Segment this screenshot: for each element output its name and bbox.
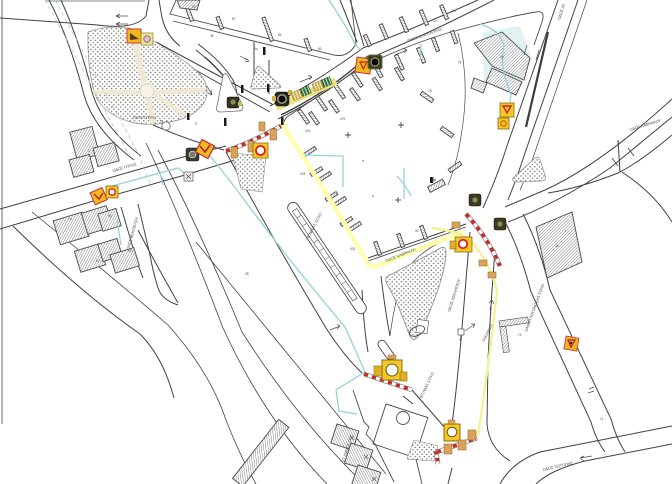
svg-text:97: 97 [96,259,100,263]
svg-text:ΠΕΡΙΠΤΕΡΟ: ΠΕΡΙΠΤΕΡΟ [133,115,156,120]
svg-text:28: 28 [245,272,249,276]
svg-text:39: 39 [415,229,419,233]
svg-text:203: 203 [300,172,306,176]
svg-text:84: 84 [278,33,282,37]
svg-text:69: 69 [192,5,196,9]
svg-text:μ: μ [372,194,374,198]
svg-text:47α: 47α [305,129,311,133]
svg-text:479: 479 [340,117,346,121]
svg-text:7α: 7α [68,217,72,221]
svg-text:2β: 2β [500,55,504,59]
svg-text:97α: 97α [128,249,134,253]
svg-text:87: 87 [232,17,236,21]
svg-text:78: 78 [428,89,432,93]
svg-text:9β: 9β [108,214,112,218]
svg-text:74: 74 [518,333,522,337]
svg-text:10: 10 [433,19,437,23]
svg-text:46: 46 [210,34,214,38]
svg-text:4: 4 [88,149,90,153]
svg-text:3α: 3α [254,47,258,51]
svg-text:2γ: 2γ [458,60,462,64]
svg-text:2α: 2α [452,9,456,13]
svg-text:46: 46 [555,244,559,248]
svg-text:80: 80 [318,47,322,51]
svg-text:47β: 47β [350,247,356,251]
svg-text:11: 11 [600,417,604,421]
